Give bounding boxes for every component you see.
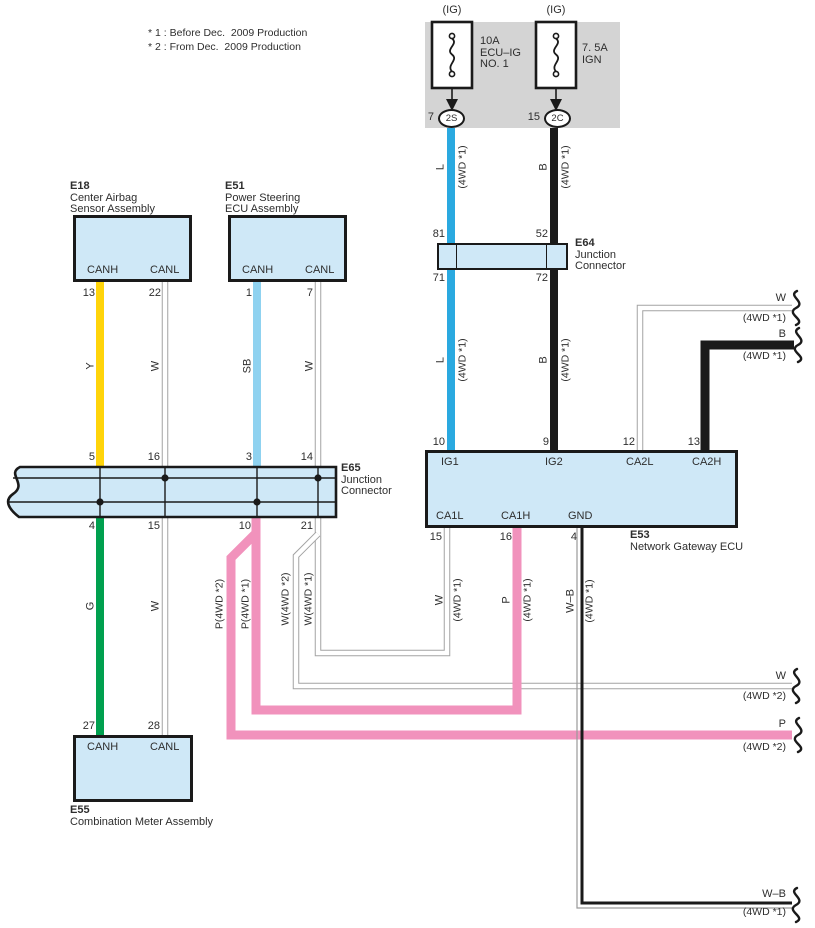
wire-qual-4wd1: (4WD *1) xyxy=(560,145,572,188)
e64-pin-52: 52 xyxy=(522,229,548,241)
wire-label-l: L xyxy=(435,357,447,363)
wire-label-w: W xyxy=(434,595,446,605)
break-symbol xyxy=(795,718,802,752)
wire-qual-4wd1: (4WD *1) xyxy=(457,145,469,188)
wire-label-y: Y xyxy=(85,362,97,369)
wiring-diagram: * 1 : Before Dec. 2009 Production * 2 : … xyxy=(0,0,815,928)
fuse1-ig-tag: (IG) xyxy=(432,5,472,17)
offpage-p-code: P xyxy=(726,719,786,731)
wire-wb-black xyxy=(582,528,792,903)
break-symbol xyxy=(793,669,800,703)
e51-name2: ECU Assembly xyxy=(225,204,300,216)
junction-dot xyxy=(253,498,260,505)
e55-pin-27: 27 xyxy=(69,721,95,733)
e55-canl: CANL xyxy=(150,741,179,753)
wire-label-w: W xyxy=(304,361,316,371)
e53-label: E53 Network Gateway ECU xyxy=(630,530,743,553)
wire-label-g: G xyxy=(85,602,97,611)
e65-pin-10: 10 xyxy=(225,521,251,533)
wire-label-l: L xyxy=(435,164,447,170)
wire-wb-gray xyxy=(577,528,792,908)
e65-name2: Connector xyxy=(341,486,392,498)
connector-2c-label: 2C xyxy=(551,113,563,124)
connector-2c: 2C xyxy=(544,109,571,128)
e64-pin-72: 72 xyxy=(522,273,548,285)
e53-term-ig2: IG2 xyxy=(545,456,563,468)
pin-2c: 15 xyxy=(514,112,540,124)
wire-qual-4wd1: (4WD *1) xyxy=(457,338,469,381)
fuse2-rating: 7. 5A xyxy=(582,43,608,55)
e64-divider xyxy=(456,245,457,268)
offpage-wb-code: W–B xyxy=(726,889,786,901)
e65-id: E65 xyxy=(341,463,392,475)
e53-name: Network Gateway ECU xyxy=(630,542,743,554)
e65-pin-5: 5 xyxy=(69,452,95,464)
fuse2-ig-tag: (IG) xyxy=(536,5,576,17)
junction-dot xyxy=(161,474,168,481)
offpage-w-mid-code: W xyxy=(726,671,786,683)
wire-label-b: B xyxy=(538,163,550,170)
junction-dot xyxy=(314,474,321,481)
break-symbol xyxy=(795,328,802,362)
wire-label-p: P xyxy=(501,596,513,603)
note-before-production: * 1 : Before Dec. 2009 Production xyxy=(148,28,307,40)
e64-pin-81: 81 xyxy=(419,229,445,241)
offpage-w-top-qual: (4WD *1) xyxy=(726,313,786,325)
e64-name2: Connector xyxy=(575,261,626,273)
fuse-ign xyxy=(536,22,576,111)
e51-canh: CANH xyxy=(242,264,273,276)
offpage-b-code: B xyxy=(726,329,786,341)
e51-pin-7: 7 xyxy=(287,288,313,300)
wire-e65-w-offpage xyxy=(296,534,792,686)
e65-pin-4: 4 xyxy=(69,521,95,533)
wire-label-w-4wd2: W(4WD *2) xyxy=(280,572,292,625)
break-symbol xyxy=(793,888,800,922)
offpage-b-qual: (4WD *1) xyxy=(726,351,786,363)
e53-pin-15: 15 xyxy=(416,532,442,544)
e53-term-ca1h: CA1H xyxy=(501,510,530,522)
offpage-w-mid-qual: (4WD *2) xyxy=(726,691,786,703)
e64-box xyxy=(437,243,568,270)
fuse1-label: 10A ECU–IG NO. 1 xyxy=(480,36,521,71)
fuse1-name2: NO. 1 xyxy=(480,59,521,71)
wire-label-w: W xyxy=(150,361,162,371)
e64-pin-71: 71 xyxy=(419,273,445,285)
e55-canh: CANH xyxy=(87,741,118,753)
e65-pin-3: 3 xyxy=(226,452,252,464)
fuse1-rating: 10A xyxy=(480,36,521,48)
e55-box: CANH CANL xyxy=(73,735,193,802)
e18-canh: CANH xyxy=(87,264,118,276)
wire-qual-4wd1: (4WD *1) xyxy=(560,338,572,381)
wire-label-sb: SB xyxy=(242,359,254,374)
e51-id: E51 xyxy=(225,181,300,193)
e53-term-ca1l: CA1L xyxy=(436,510,464,522)
e55-label: E55 Combination Meter Assembly xyxy=(70,805,213,828)
fuse-ecu-ig xyxy=(432,22,472,111)
e53-id: E53 xyxy=(630,530,743,542)
e53-pin-16: 16 xyxy=(486,532,512,544)
e53-box: IG1 IG2 CA2L CA2H CA1L CA1H GND xyxy=(425,450,738,528)
note-from-production: * 2 : From Dec. 2009 Production xyxy=(148,42,301,54)
e53-pin-4: 4 xyxy=(551,532,577,544)
e51-box: CANH CANL xyxy=(228,215,347,282)
e65-label: E65 Junction Connector xyxy=(341,463,392,498)
e65-junction-band xyxy=(8,467,336,517)
e18-id: E18 xyxy=(70,181,155,193)
e55-id: E55 xyxy=(70,805,213,817)
e51-pin-1: 1 xyxy=(226,288,252,300)
connector-2s-label: 2S xyxy=(446,113,458,124)
fuse2-label: 7. 5A IGN xyxy=(582,43,608,66)
e18-box: CANH CANL xyxy=(73,215,192,282)
e18-pin-22: 22 xyxy=(135,288,161,300)
e53-term-ca2l: CA2L xyxy=(626,456,654,468)
offpage-p-qual: (4WD *2) xyxy=(726,742,786,754)
e18-pin-13: 13 xyxy=(69,288,95,300)
pin-2s: 7 xyxy=(408,112,434,124)
e53-pin-12: 12 xyxy=(609,437,635,449)
e65-pin-16: 16 xyxy=(134,452,160,464)
offpage-wb-qual: (4WD *1) xyxy=(726,907,786,919)
fuse2-name: IGN xyxy=(582,55,608,67)
e53-pin-9: 9 xyxy=(523,437,549,449)
e18-name2: Sensor Assembly xyxy=(70,204,155,216)
e53-term-gnd: GND xyxy=(568,510,592,522)
e64-divider xyxy=(546,245,547,268)
e64-label: E64 Junction Connector xyxy=(575,238,626,273)
e65-pin-15: 15 xyxy=(134,521,160,533)
wire-qual-4wd1: (4WD *1) xyxy=(522,578,534,621)
e53-pin-13: 13 xyxy=(674,437,700,449)
break-symbol xyxy=(793,291,800,325)
wire-qual-4wd1: (4WD *1) xyxy=(452,578,464,621)
wire-label-p-4wd2: P(4WD *2) xyxy=(214,579,226,629)
wire-label-w: W xyxy=(150,601,162,611)
connector-2s: 2S xyxy=(438,109,465,128)
e18-label: E18 Center Airbag Sensor Assembly xyxy=(70,181,155,216)
wire-label-p-4wd1: P(4WD *1) xyxy=(240,579,252,629)
e55-name: Combination Meter Assembly xyxy=(70,817,213,829)
e53-pin-10: 10 xyxy=(419,437,445,449)
junction-dot xyxy=(96,498,103,505)
wire-label-wb: W–B xyxy=(565,589,577,613)
wire-qual-4wd1: (4WD *1) xyxy=(584,579,596,622)
e51-label: E51 Power Steering ECU Assembly xyxy=(225,181,300,216)
e65-pin-14: 14 xyxy=(287,452,313,464)
e55-pin-28: 28 xyxy=(134,721,160,733)
e53-term-ig1: IG1 xyxy=(441,456,459,468)
e53-term-ca2h: CA2H xyxy=(692,456,721,468)
wire-label-w-4wd1: W(4WD *1) xyxy=(303,572,315,625)
e64-id: E64 xyxy=(575,238,626,250)
e65-pin-21: 21 xyxy=(287,521,313,533)
wire-label-b: B xyxy=(538,356,550,363)
e51-canl: CANL xyxy=(305,264,334,276)
e18-canl: CANL xyxy=(150,264,179,276)
offpage-w-top-code: W xyxy=(726,293,786,305)
